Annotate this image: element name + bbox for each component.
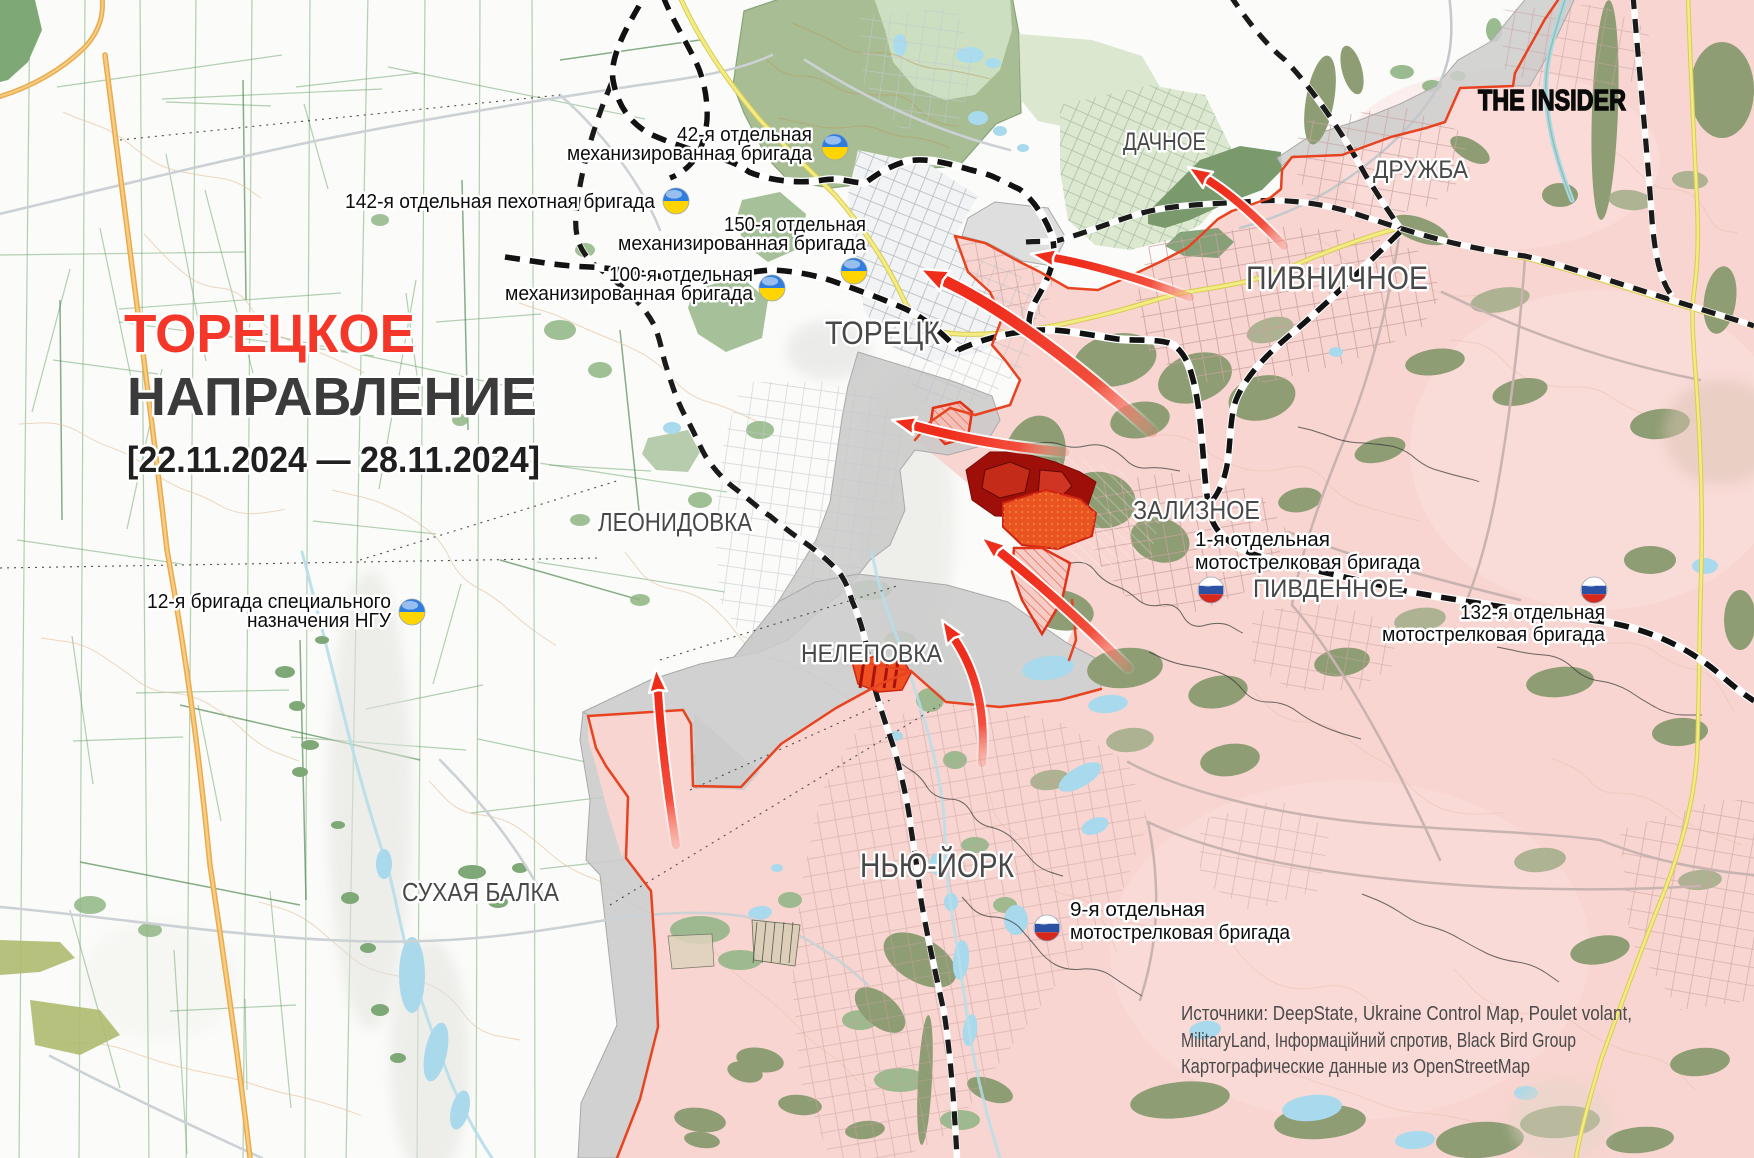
- svg-text:1-я отдельная: 1-я отдельная: [1195, 529, 1330, 551]
- svg-text:механизированная бригада: механизированная бригада: [618, 233, 867, 255]
- svg-text:ЗАЛИЗНОЕ: ЗАЛИЗНОЕ: [1133, 495, 1260, 525]
- svg-text:мотострелковая бригада: мотострелковая бригада: [1195, 552, 1421, 574]
- svg-text:ЛЕОНИДОВКА: ЛЕОНИДОВКА: [598, 507, 753, 537]
- svg-text:ТОРЕЦК: ТОРЕЦК: [825, 315, 940, 351]
- svg-text:ПИВНИЧНОЕ: ПИВНИЧНОЕ: [1246, 260, 1428, 296]
- svg-text:СУХАЯ БАЛКА: СУХАЯ БАЛКА: [402, 877, 560, 907]
- svg-text:ДРУЖБА: ДРУЖБА: [1373, 156, 1468, 184]
- svg-text:ДАЧНОЕ: ДАЧНОЕ: [1123, 128, 1206, 156]
- svg-text:[22.11.2024 — 28.11.2024]: [22.11.2024 — 28.11.2024]: [127, 439, 540, 480]
- svg-text:НЬЮ-ЙОРК: НЬЮ-ЙОРК: [860, 847, 1014, 885]
- svg-text:ТОРЕЦКОЕ: ТОРЕЦКОЕ: [124, 304, 415, 364]
- svg-text:142-я отдельная пехотная брига: 142-я отдельная пехотная бригада: [345, 191, 656, 213]
- svg-text:механизированная бригада: механизированная бригада: [567, 143, 813, 165]
- svg-text:механизированная бригада: механизированная бригада: [505, 283, 754, 305]
- svg-text:9-я отдельная: 9-я отдельная: [1070, 899, 1205, 921]
- svg-text:MilitaryLand, Інформаційний сп: MilitaryLand, Інформаційний спротив, Bla…: [1181, 1030, 1576, 1052]
- svg-text:мотострелковая бригада: мотострелковая бригада: [1070, 922, 1291, 944]
- svg-text:мотострелковая бригада: мотострелковая бригада: [1382, 624, 1606, 646]
- svg-text:назначения НГУ: назначения НГУ: [247, 610, 391, 632]
- svg-text:Картографические данные из Ope: Картографические данные из OpenStreetMap: [1181, 1056, 1530, 1078]
- svg-text:НЕЛЕПОВКА: НЕЛЕПОВКА: [801, 640, 942, 668]
- svg-text:ПИВДЕННОЕ: ПИВДЕННОЕ: [1253, 575, 1404, 603]
- svg-text:132-я отдельная: 132-я отдельная: [1460, 602, 1605, 624]
- svg-text:Источники: DeepState, Ukraine: Источники: DeepState, Ukraine Control Ma…: [1181, 1003, 1632, 1025]
- svg-text:THE INSIDER: THE INSIDER: [1478, 85, 1626, 117]
- svg-text:НАПРАВЛЕНИЕ: НАПРАВЛЕНИЕ: [127, 367, 537, 427]
